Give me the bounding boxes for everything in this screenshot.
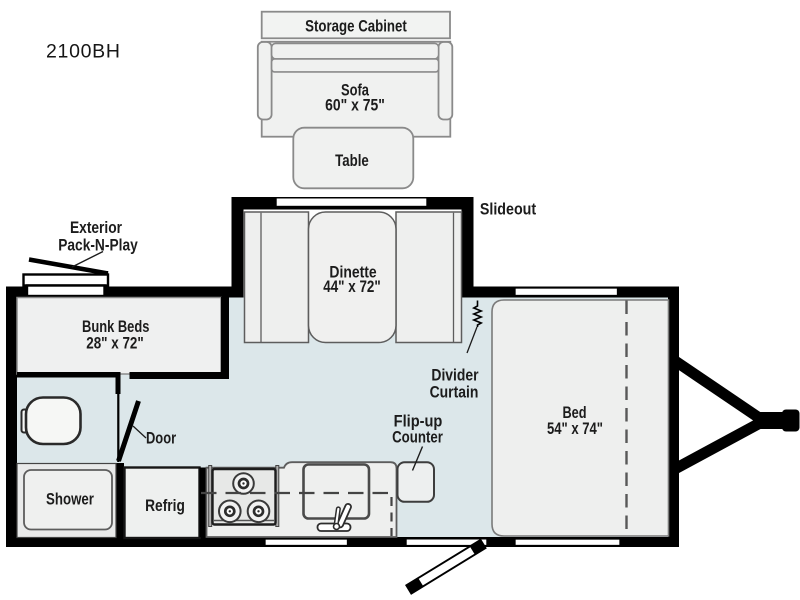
- svg-text:60" x 75": 60" x 75": [325, 96, 385, 115]
- svg-text:Exterior: Exterior: [70, 219, 122, 238]
- svg-text:2100BH: 2100BH: [46, 41, 121, 63]
- svg-text:Refrig: Refrig: [145, 497, 185, 516]
- svg-text:54" x 74": 54" x 74": [547, 419, 603, 438]
- svg-text:Door: Door: [146, 429, 176, 448]
- svg-text:Slideout: Slideout: [480, 200, 537, 218]
- svg-text:Shower: Shower: [46, 490, 94, 509]
- svg-text:Pack-N-Play: Pack-N-Play: [58, 236, 138, 255]
- svg-text:Curtain: Curtain: [430, 383, 479, 402]
- svg-text:28" x 72": 28" x 72": [86, 334, 143, 353]
- svg-text:Storage Cabinet: Storage Cabinet: [305, 17, 407, 36]
- svg-text:Counter: Counter: [392, 428, 443, 447]
- svg-text:44" x 72": 44" x 72": [323, 278, 380, 297]
- svg-text:Table: Table: [335, 152, 369, 171]
- svg-text:Divider: Divider: [431, 366, 478, 385]
